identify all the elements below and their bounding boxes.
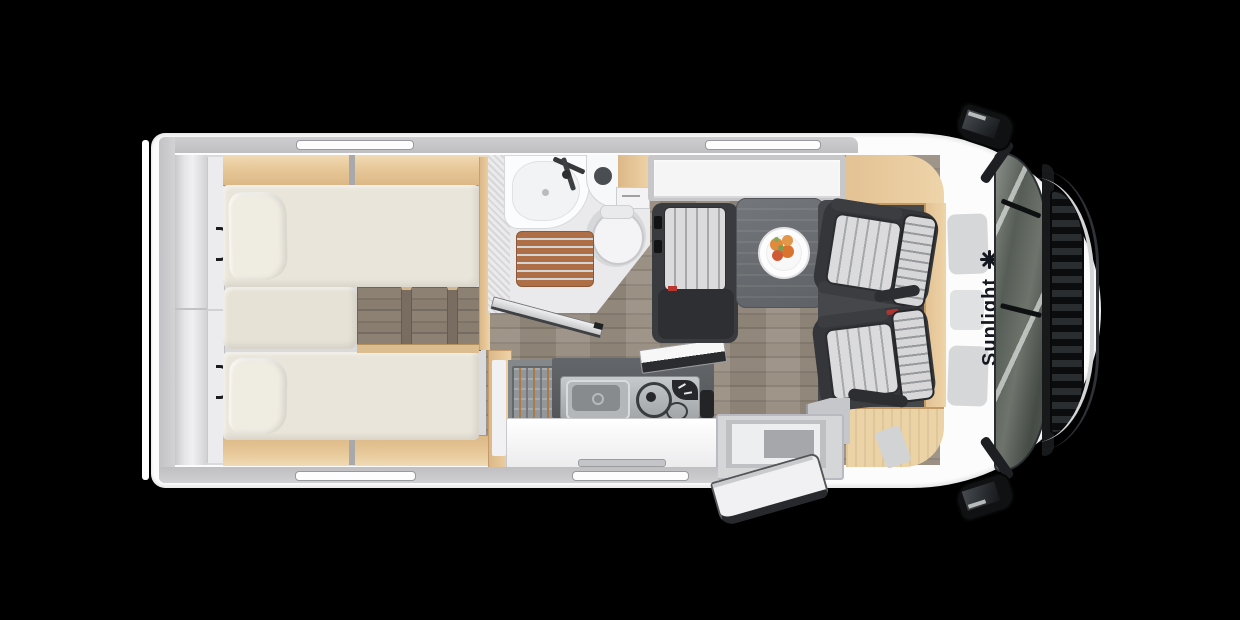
faucet-joint bbox=[562, 170, 571, 179]
bed-center-cushion bbox=[223, 287, 357, 349]
bed-steps bbox=[357, 287, 481, 351]
wall-left bbox=[159, 137, 175, 483]
kitchen-side-door bbox=[492, 360, 506, 456]
seatbelt-bracket bbox=[654, 216, 662, 229]
bathroom-wood-shelf bbox=[618, 155, 650, 187]
fruit bbox=[772, 250, 783, 261]
rear-garage bbox=[175, 155, 207, 465]
bed-headboard-seam bbox=[207, 309, 223, 311]
rear-garage-seam bbox=[175, 308, 207, 310]
entry-step-hole bbox=[764, 430, 814, 458]
sink-drain bbox=[542, 189, 549, 196]
fruit-leaf bbox=[774, 237, 779, 242]
pillow-top bbox=[228, 192, 288, 281]
dinette-red-accent bbox=[668, 286, 677, 291]
utensil-rack bbox=[512, 366, 556, 420]
bed-step-divider-2 bbox=[447, 287, 458, 349]
fruit-leaf bbox=[778, 245, 784, 251]
shower-grate bbox=[516, 231, 594, 287]
kettle bbox=[700, 390, 714, 418]
fruit bbox=[782, 235, 793, 246]
rear-bumper bbox=[142, 140, 149, 480]
dinette-bench-base bbox=[658, 289, 734, 339]
motorhome-floorplan: Sunlight bbox=[0, 0, 1240, 620]
bed-step-edge bbox=[357, 344, 479, 353]
window-top-rear bbox=[296, 140, 414, 150]
toilet-seat bbox=[592, 211, 644, 265]
window-bottom-front bbox=[572, 471, 689, 481]
bathroom-drawer-handle bbox=[622, 195, 640, 197]
corner-cabinet-basin bbox=[594, 167, 612, 185]
overhead-locker bbox=[654, 160, 840, 198]
nose-edge-line bbox=[1040, 170, 1099, 450]
kitchen-front-handle bbox=[578, 459, 666, 467]
hob-burner-large-cap bbox=[646, 392, 656, 402]
window-top-front bbox=[705, 140, 821, 150]
seat-cushion bbox=[825, 212, 903, 294]
window-bottom-rear bbox=[295, 471, 416, 481]
seatbelt-bracket bbox=[654, 240, 662, 253]
pillow-bottom bbox=[228, 357, 287, 434]
toilet-lid bbox=[600, 205, 634, 219]
overhead-shelf-top bbox=[223, 155, 488, 186]
dinette-bench-pad bbox=[664, 207, 726, 291]
bed-step-divider-1 bbox=[401, 287, 412, 349]
kitchen-sink-drain bbox=[592, 393, 604, 405]
shelf-divider-top bbox=[349, 155, 355, 185]
